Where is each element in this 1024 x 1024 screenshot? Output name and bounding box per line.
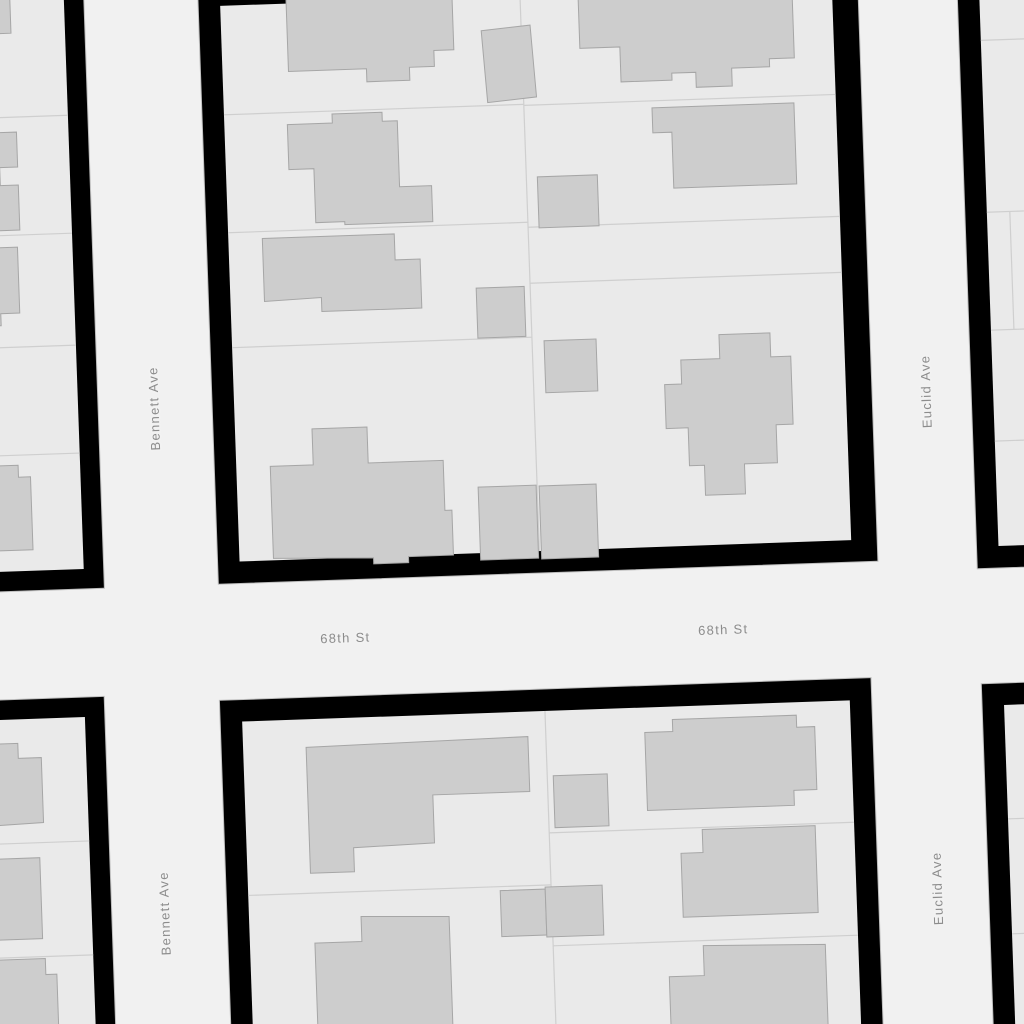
- building-footprint: [478, 485, 539, 560]
- street-label-bennett-ave-top: Bennett Ave: [145, 366, 163, 451]
- building-footprint: [652, 103, 797, 189]
- building-footprint: [476, 286, 526, 338]
- street-label-68th-st-right: 68th St: [698, 621, 749, 638]
- building-footprint: [545, 885, 604, 937]
- map-viewport[interactable]: Bennett AveBennett AveEuclid AveEuclid A…: [0, 0, 1024, 1024]
- street-label-euclid-ave-top: Euclid Ave: [917, 355, 935, 429]
- building-footprint: [537, 175, 599, 228]
- city-block-bottom-center: [219, 678, 886, 1024]
- street-label-bennett-ave-bottom: Bennett Ave: [156, 871, 174, 956]
- street-label-euclid-ave-bottom: Euclid Ave: [929, 851, 947, 925]
- building-footprint: [500, 889, 547, 937]
- building-footprint: [0, 858, 43, 942]
- building-footprint: [553, 774, 609, 828]
- map-canvas[interactable]: Bennett AveBennett AveEuclid AveEuclid A…: [0, 0, 1024, 1024]
- city-block-bottom-left: [0, 696, 120, 1024]
- city-block-top-center: [197, 0, 878, 584]
- building-footprint: [544, 339, 598, 393]
- building-footprint: [539, 484, 599, 559]
- building-footprint: [481, 25, 537, 103]
- building-footprint: [0, 465, 33, 553]
- street-label-68th-st-left: 68th St: [320, 629, 371, 646]
